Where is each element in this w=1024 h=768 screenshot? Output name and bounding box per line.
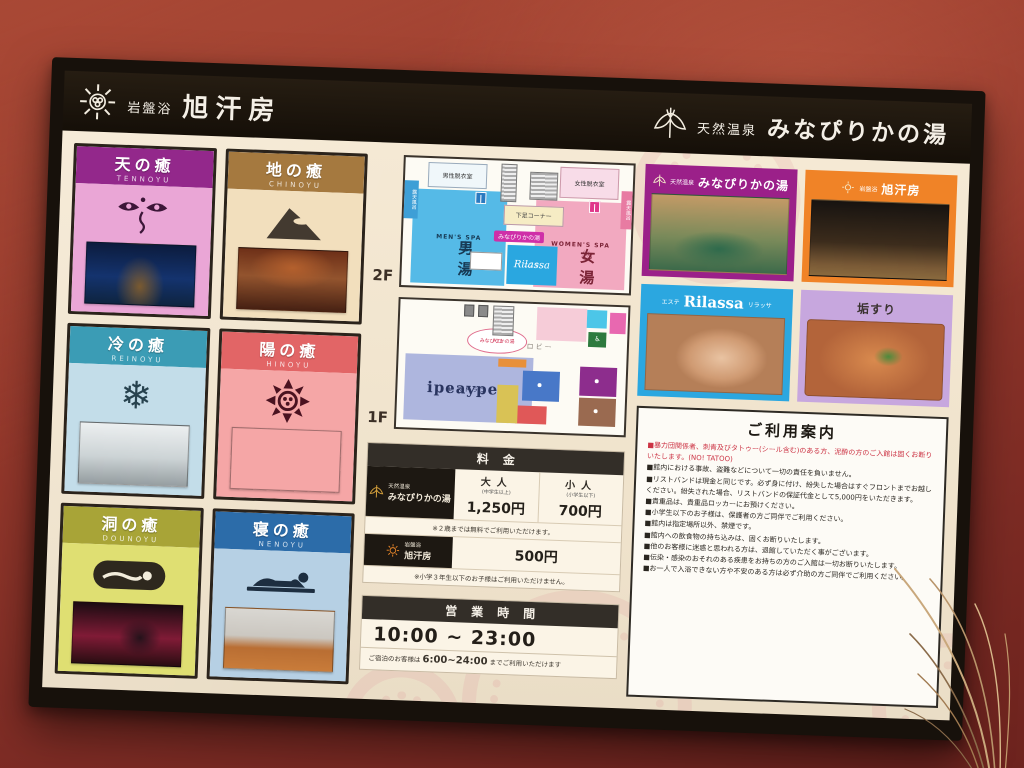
lobby-label: ロビー [526,342,553,353]
facility-brand: 岩盤浴 [859,183,877,193]
floor2-map-wrap: 2F ♨男湯 MEN'S SPA ♨女湯 WOMEN'S SPA 露天風呂 露天… [399,155,636,295]
room-tile-dounoyu: 洞の癒 DOUNOYU [55,503,204,679]
facility-brand: 天然温泉 [670,176,694,186]
elevator-icon [478,304,488,316]
shoe-corner: 下足コーナー [504,204,564,227]
mountain-icon [264,190,324,246]
facility-tile-kyokkanbo: 岩盤浴 旭汗房 [801,170,957,287]
room-photo-hinoyu [229,427,341,493]
right-sign: 天然温泉 みなぴりかの湯 [653,103,950,152]
accessible-toilet-block: ♿ [588,332,607,348]
map-room-block-pink [536,307,587,342]
room-tile-grid: 天の癒 TENNOYU [55,143,368,686]
map-room-block-yellow [496,385,518,424]
facility-prefix: エステ [661,296,679,306]
buddha-eyes-icon [114,185,172,241]
facility-kana: リラッサ [748,299,772,309]
facility-name: Rilassa [683,292,744,312]
hours-note-time: 6:00~24:00 [422,654,487,667]
stone-spa-photo [809,199,950,281]
map-room-block-purple [580,367,617,396]
facility-tile-rilassa: エステ Rilassa リラッサ [637,284,793,401]
stone-brand-name: 旭汗房 [404,548,431,562]
room-photo-chinoyu [236,247,348,313]
spa-brand-name: みなぴりかの湯 [388,489,451,504]
room-tile-body [222,189,363,323]
room-tile-header: 陽の癒 HINOYU [220,332,358,374]
facility-tile-minapirika: 天然温泉 みなぴりかの湯 [642,164,798,281]
adult-price: 1,250円 [454,496,538,519]
room-tile-header: 洞の癒 DOUNOYU [62,506,200,548]
room-tile-body: ❄ [64,363,205,497]
spa-price-row: 天然温泉 みなぴりかの湯 大人 (中学生以上) 1,250円 小人 (小学生以下… [366,466,624,526]
adult-fee: 大人 (中学生以上) 1,250円 [454,469,539,522]
facility-title: 垢すり [807,296,946,321]
scrub-photo [804,319,945,401]
entrance-line2: 入口 [492,337,502,344]
floor1-map-wrap: 1F レストラン ipeaypea ロビー みなぴりかの湯 入口 [394,297,631,437]
openair-bath-right: 露天風呂 [620,191,633,230]
room-tile-nenoyu: 寝の癒 NENOYU [206,508,355,684]
lotus-logo-icon [653,103,688,142]
bench-block [498,359,526,368]
kiosk-area [470,252,503,271]
pricing-table: 料金 天然温泉 みなぴりかの湯 [362,442,625,592]
capsule-sleeper-icon [91,544,169,601]
floor1-label: 1F [367,408,388,427]
stone-logo-cell: 岩盤浴 旭汗房 [364,534,453,568]
room-tile-chinoyu: 地の癒 CHINOYU [219,149,368,325]
map-room-block-red [515,406,548,425]
facility-title: 天然温泉 みなぴりかの湯 [652,170,791,195]
rilassa-label: Rilassa [514,259,551,271]
floor2-map: ♨男湯 MEN'S SPA ♨女湯 WOMEN'S SPA 露天風呂 露天風呂 … [399,155,636,295]
lotus-gold-icon [370,482,385,501]
snowflake-icon: ❄ [119,365,153,420]
room-photo-reinoyu [78,421,190,487]
floor1-map: レストラン ipeaypea ロビー みなぴりかの湯 入口 ♿ [394,297,631,437]
room-tile-hinoyu: 陽の癒 HINOYU [213,328,362,504]
room-tile-header: 地の癒 CHINOYU [227,152,365,194]
hours-note-post: までご利用いただけます [487,658,561,669]
room-tile-tennoyu: 天の癒 TENNOYU [68,143,217,319]
bath-photo [649,193,790,275]
facility-title: エステ Rilassa リラッサ [647,290,786,315]
stairs [530,172,558,201]
facility-grid: 天然温泉 みなぴりかの湯 岩盤浴 [637,164,957,407]
facility-name: みなぴりかの湯 [698,173,790,193]
sun-logo-icon [77,81,118,122]
facility-title: 岩盤浴 旭汗房 [812,176,951,201]
room-tile-header: 寝の癒 NENOYU [214,511,352,553]
fee-columns: 大人 (中学生以上) 1,250円 小人 (小学生以下) 700円 [454,469,624,525]
mens-toilet-block [587,310,608,329]
room-photo-tennoyu [84,241,196,307]
room-tile-header: 冷の癒 REINOYU [69,326,207,368]
spa-logo-cell: 天然温泉 みなぴりかの湯 [366,466,456,519]
right-sign-name: みなぴりかの湯 [767,109,950,150]
facility-name: 垢すり [857,299,897,317]
business-hours: 営業時間 10:00 ~ 23:00 ご宿泊のお客様は 6:00~24:00 ま… [359,595,620,679]
room-tile-body [58,543,199,677]
right-sign-brand: 天然温泉 [697,117,758,138]
sun-logo-icon [841,180,856,195]
hours-note-pre: ご宿泊のお客様は [368,654,422,664]
room-tile-body [216,368,357,502]
room-photo-dounoyu [71,601,183,667]
sun-orange-icon [385,543,401,559]
floor2-label: 2F [372,266,393,285]
left-sign-brand: 岩盤浴 [127,96,173,117]
stone-price: 500円 [452,537,621,574]
middle-column: 2F ♨男湯 MEN'S SPA ♨女湯 WOMEN'S SPA 露天風呂 露天… [358,154,635,696]
womens-dressing-room: 女性脱衣室 [559,167,619,200]
facility-name: 旭汗房 [881,180,921,198]
room-tile-body [71,183,212,317]
spa-brand-label: みなぴりかの湯 [494,231,544,244]
room-tile-header: 天の癒 TENNOYU [76,146,214,188]
map-room-block-blue [522,370,560,402]
mens-spa-sub: MEN'S SPA [436,233,481,242]
left-sign-name: 旭汗房 [182,86,282,127]
map-room-block-brown [578,398,615,427]
mens-spa-area: ♨男湯 MEN'S SPA [410,188,507,286]
dried-plant [790,524,1024,768]
sun-icon [264,370,312,426]
sleeper-icon [242,549,320,606]
left-sign: 岩盤浴 旭汗房 [77,81,282,128]
rilassa-salon-area: エステ Rilassa [506,245,558,285]
womens-spa-sub: WOMEN'S SPA [551,241,610,250]
room-tile-body [209,548,350,682]
child-price: 700円 [538,499,622,522]
room-tile-reinoyu: 冷の癒 REINOYU ❄ [61,323,210,499]
elevator-icon [464,304,474,316]
mens-dressing-room: 男性脱衣室 [427,162,487,190]
facility-tile-akasuri: 垢すり [797,290,953,407]
room-photo-nenoyu [223,607,335,673]
massage-photo [644,313,785,395]
stairs [493,305,515,336]
elevator-icon [589,201,600,213]
stairs [500,163,517,202]
openair-bath-left: 露天風呂 [404,180,419,219]
womens-toilet-block [609,313,626,334]
elevator-icon [475,192,486,204]
child-fee: 小人 (小学生以下) 700円 [537,472,623,525]
lotus-logo-icon [653,172,667,188]
